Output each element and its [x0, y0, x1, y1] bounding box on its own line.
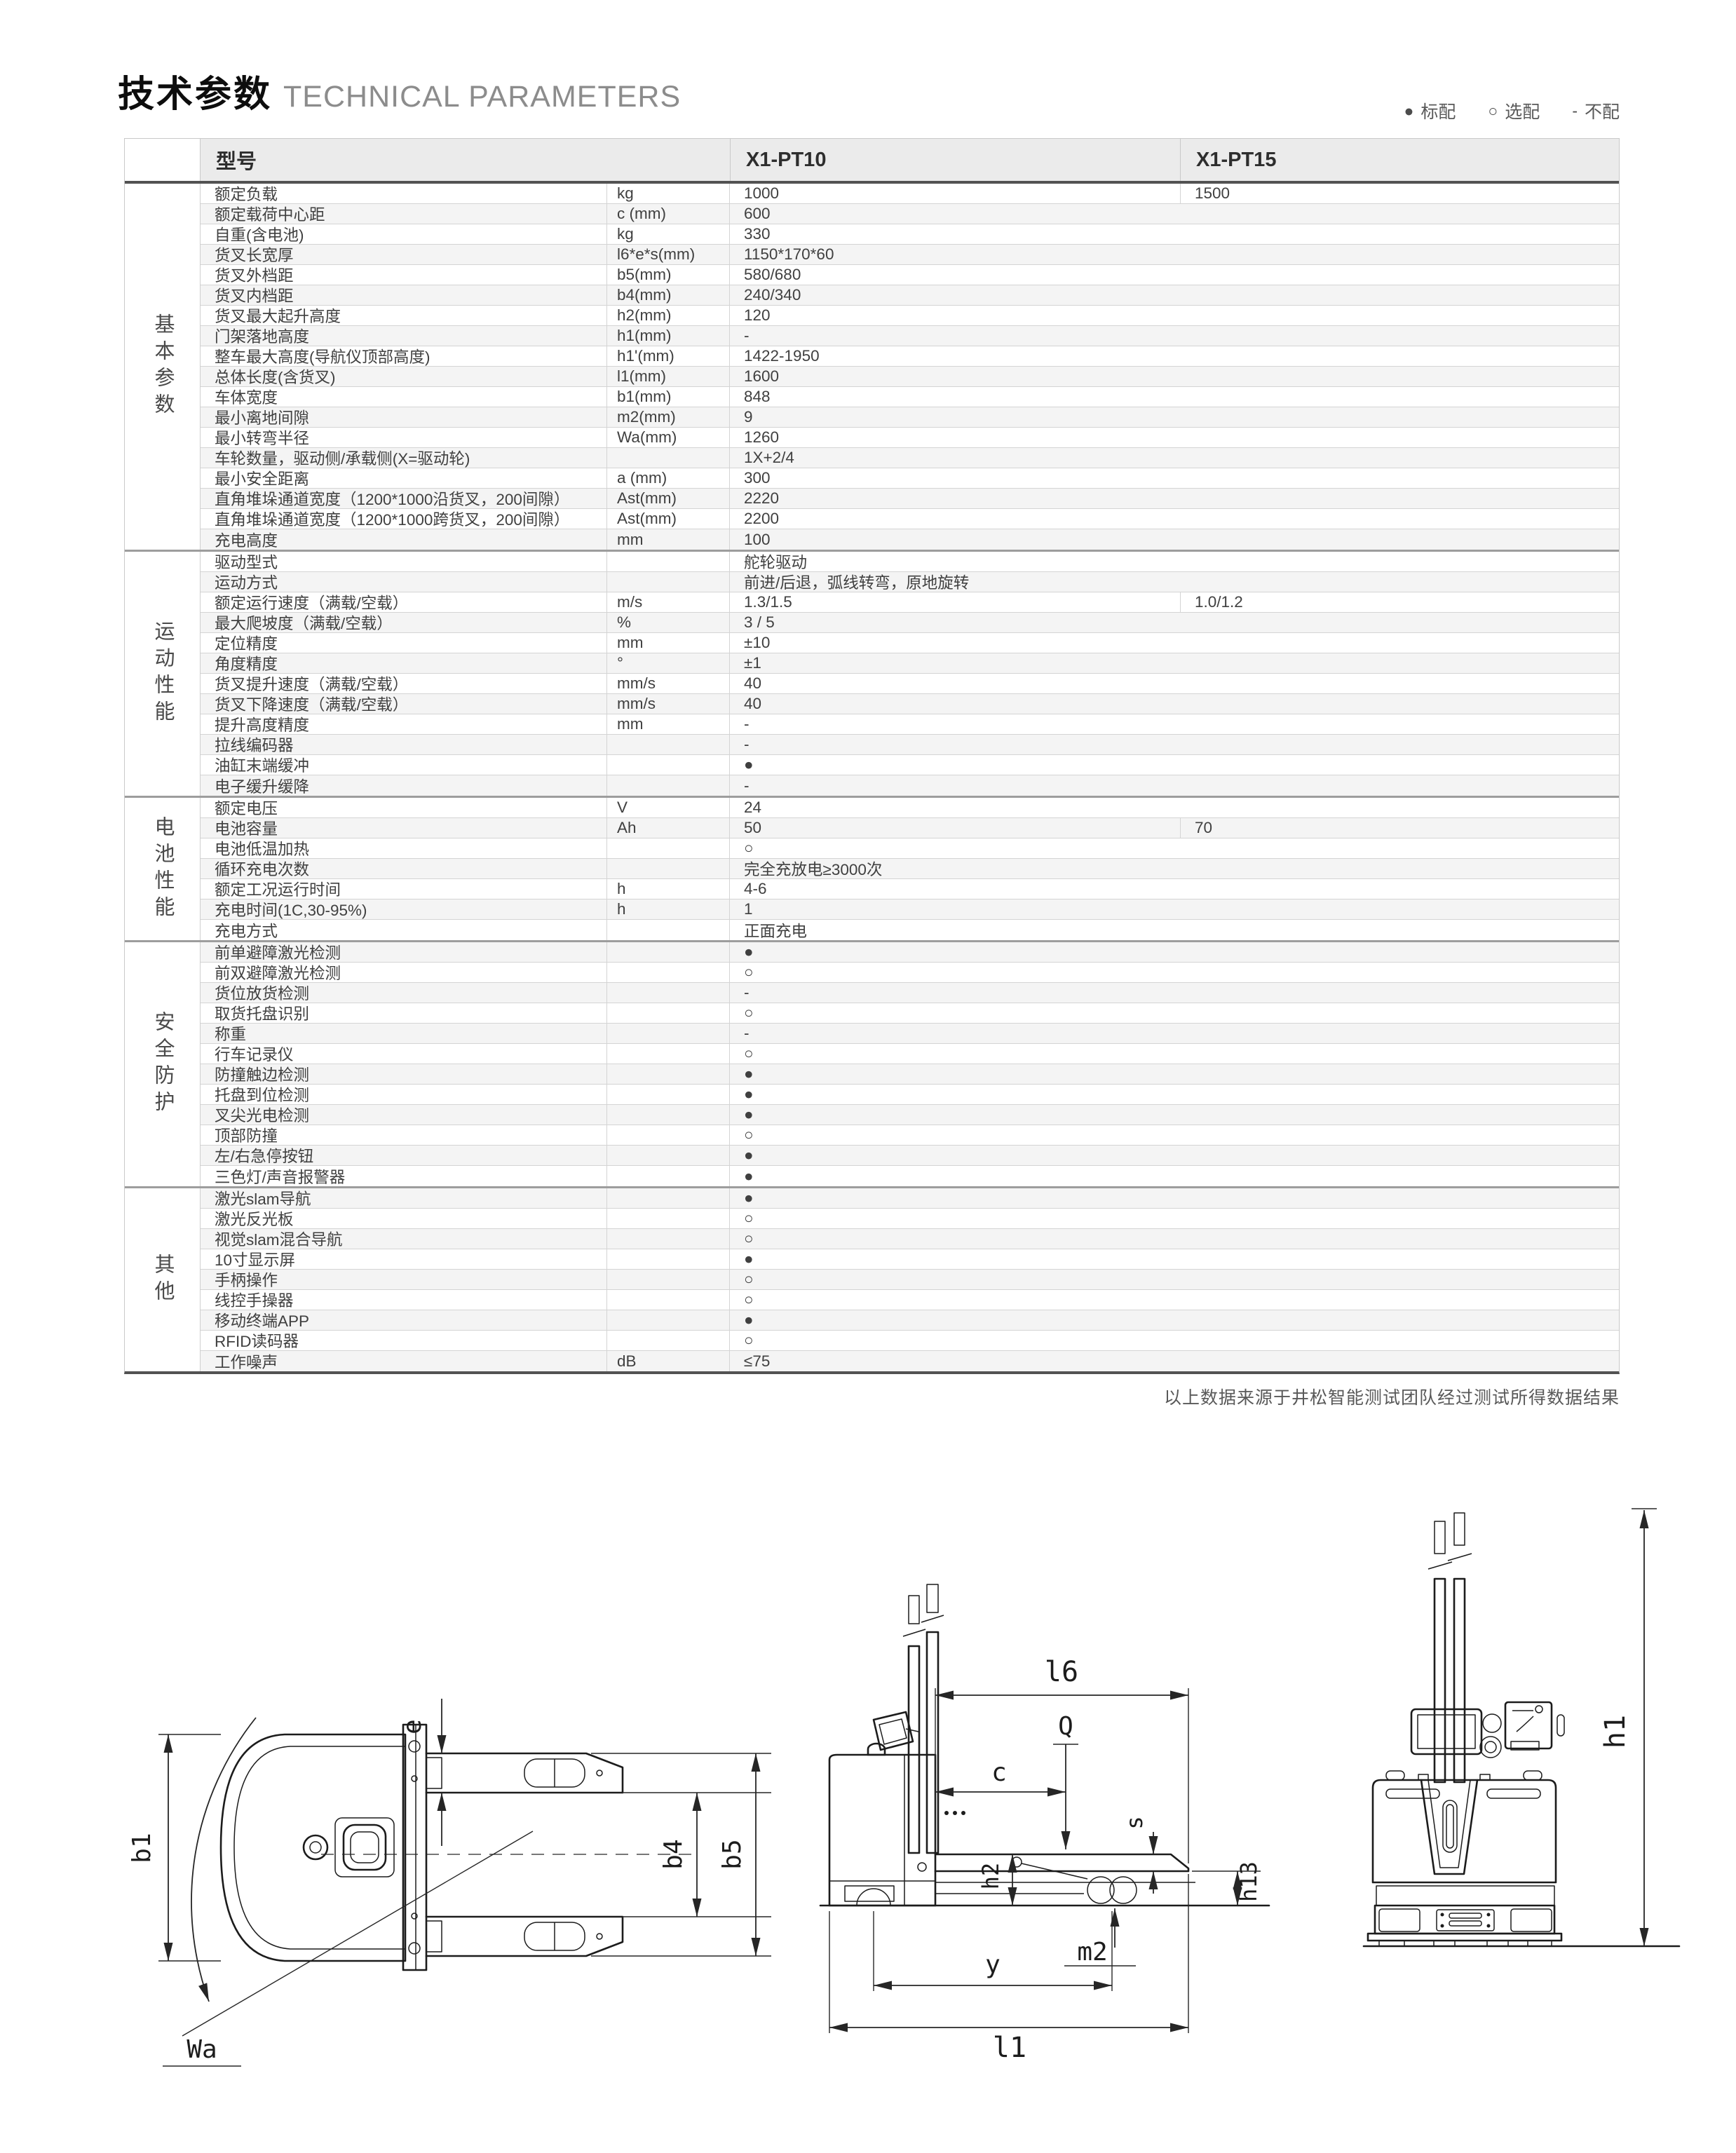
param-label: 额定载荷中心距: [201, 204, 607, 224]
param-label: 电池低温加热: [201, 838, 607, 858]
model-x1-pt15-cell: X1-PT15: [1180, 139, 1619, 181]
table-section: 运动性能驱动型式舵轮驱动运动方式前进/后退，弧线转弯，原地旋转额定运行速度（满载…: [125, 550, 1619, 796]
param-value: ○: [730, 1044, 1619, 1064]
param-value: ±1: [730, 653, 1619, 673]
top-view-drawing: b1 e b4 b5 Wa: [104, 1609, 798, 2100]
table-row: 线控手操器○: [201, 1290, 1619, 1310]
param-unit: mm/s: [607, 674, 730, 693]
param-value: 前进/后退，弧线转弯，原地旋转: [730, 572, 1619, 592]
param-unit: [607, 1146, 730, 1165]
param-label: 最大爬坡度（满载/空载）: [201, 613, 607, 632]
legend-item-standard: ● 标配: [1404, 98, 1456, 123]
param-label: 前双避障激光检测: [201, 963, 607, 982]
section-label-text: 安全防护: [152, 1011, 172, 1118]
table-row: 油缸末端缓冲●: [201, 755, 1619, 775]
footnote: 以上数据来源于井松智能测试团队经过测试所得数据结果: [1164, 1384, 1620, 1409]
table-section: 安全防护前单避障激光检测●前双避障激光检测○货位放货检测-取货托盘识别○称重-行…: [125, 940, 1619, 1186]
param-unit: h: [607, 899, 730, 919]
table-row: 门架落地高度h1(mm)-: [201, 326, 1619, 346]
param-unit: mm/s: [607, 694, 730, 714]
param-label: 称重: [201, 1024, 607, 1043]
spec-table: 型号 X1-PT10 X1-PT15 基本参数额定负载kg10001500额定载…: [124, 138, 1620, 1374]
param-label: 直角堆垛通道宽度（1200*1000沿货叉，200间隙）: [201, 489, 607, 508]
param-label: 门架落地高度: [201, 326, 607, 346]
section-label: 电池性能: [125, 798, 201, 940]
param-unit: [607, 572, 730, 592]
dim-label-s: s: [1121, 1816, 1148, 1829]
param-unit: [607, 1209, 730, 1228]
param-label: 额定运行速度（满载/空载）: [201, 592, 607, 612]
param-value: ≤75: [730, 1351, 1619, 1371]
param-value: 300: [730, 468, 1619, 488]
param-value-pt10: 1.3/1.5: [730, 592, 1180, 612]
param-unit: [607, 1290, 730, 1310]
table-row: 最小离地间隙m2(mm)9: [201, 407, 1619, 428]
table-section: 其他激光slam导航●激光反光板○视觉slam混合导航○10寸显示屏●手柄操作○…: [125, 1186, 1619, 1371]
param-unit: [607, 552, 730, 571]
param-unit: Ast(mm): [607, 489, 730, 508]
param-value: 330: [730, 224, 1619, 244]
param-unit: h2(mm): [607, 306, 730, 325]
param-value-pt10: 1000: [730, 184, 1180, 203]
table-row: 叉尖光电检测●: [201, 1105, 1619, 1125]
param-value: 1260: [730, 428, 1619, 447]
table-row: 额定载荷中心距c (mm)600: [201, 204, 1619, 224]
param-unit: [607, 448, 730, 468]
param-unit: [607, 755, 730, 775]
param-label: 行车记录仪: [201, 1044, 607, 1064]
table-row: 整车最大高度(导航仪顶部高度)h1'(mm)1422-1950: [201, 346, 1619, 367]
dim-label-q: Q: [1058, 1712, 1073, 1741]
param-label: 顶部防撞: [201, 1125, 607, 1145]
param-label: 10寸显示屏: [201, 1249, 607, 1269]
param-label: 角度精度: [201, 653, 607, 673]
param-value: ○: [730, 838, 1619, 858]
param-value: 40: [730, 674, 1619, 693]
dim-label-wa: Wa: [187, 2035, 217, 2064]
param-label: 额定电压: [201, 798, 607, 817]
param-unit: kg: [607, 224, 730, 244]
param-value: ●: [730, 1064, 1619, 1084]
param-value-pt10: 50: [730, 818, 1180, 838]
table-row: 货叉外档距b5(mm)580/680: [201, 265, 1619, 285]
param-label: 激光反光板: [201, 1209, 607, 1228]
dim-label-y: y: [985, 1950, 1001, 1979]
param-unit: [607, 1024, 730, 1043]
param-label: 最小离地间隙: [201, 407, 607, 427]
param-unit: mm: [607, 633, 730, 653]
param-unit: a (mm): [607, 468, 730, 488]
dim-label-h2: h2: [977, 1863, 1004, 1890]
page-title: 技术参数TECHNICAL PARAMETERS: [118, 64, 681, 117]
table-row: 货叉最大起升高度h2(mm)120: [201, 306, 1619, 326]
table-row: 额定运行速度（满载/空载）m/s1.3/1.51.0/1.2: [201, 592, 1619, 613]
param-value: ○: [730, 1331, 1619, 1350]
param-label: 电子缓升缓降: [201, 775, 607, 796]
table-row: 额定电压V24: [201, 798, 1619, 818]
param-unit: l1(mm): [607, 367, 730, 386]
param-value: -: [730, 983, 1619, 1003]
table-row: 拉线编码器-: [201, 735, 1619, 755]
param-label: 左/右急停按钮: [201, 1146, 607, 1165]
table-row: 防撞触边检测●: [201, 1064, 1619, 1085]
param-unit: dB: [607, 1351, 730, 1371]
param-value: ●: [730, 942, 1619, 962]
model-header-cell: 型号: [201, 139, 730, 181]
section-rows: 额定负载kg10001500额定载荷中心距c (mm)600自重(含电池)kg3…: [201, 184, 1619, 550]
dim-label-m2: m2: [1077, 1938, 1107, 1967]
section-rows: 激光slam导航●激光反光板○视觉slam混合导航○10寸显示屏●手柄操作○线控…: [201, 1188, 1619, 1371]
param-label: 货叉内档距: [201, 285, 607, 305]
hollow-dot-icon: ○: [1488, 102, 1498, 121]
param-value: 600: [730, 204, 1619, 224]
param-label: 额定负载: [201, 184, 607, 203]
param-unit: Ah: [607, 818, 730, 838]
table-row: 总体长度(含货叉)l1(mm)1600: [201, 367, 1619, 387]
param-unit: [607, 1166, 730, 1186]
table-row: 激光反光板○: [201, 1209, 1619, 1229]
param-label: 自重(含电池): [201, 224, 607, 244]
param-label: 直角堆垛通道宽度（1200*1000跨货叉，200间隙）: [201, 509, 607, 529]
param-value: -: [730, 326, 1619, 346]
table-row: 车轮数量，驱动侧/承载侧(X=驱动轮)1X+2/4: [201, 448, 1619, 468]
table-row: 称重-: [201, 1024, 1619, 1044]
param-value: 1422-1950: [730, 346, 1619, 366]
param-value: 120: [730, 306, 1619, 325]
table-row: 驱动型式舵轮驱动: [201, 552, 1619, 572]
param-value: 9: [730, 407, 1619, 427]
table-section: 电池性能额定电压V24电池容量Ah5070电池低温加热○循环充电次数完全充放电≥…: [125, 796, 1619, 940]
param-label: 手柄操作: [201, 1270, 607, 1289]
section-rows: 前单避障激光检测●前双避障激光检测○货位放货检测-取货托盘识别○称重-行车记录仪…: [201, 942, 1619, 1186]
table-row: 循环充电次数完全充放电≥3000次: [201, 859, 1619, 879]
param-unit: [607, 775, 730, 796]
vehicle-front-outline: [1364, 1513, 1679, 1946]
param-unit: [607, 1125, 730, 1145]
param-unit: b1(mm): [607, 387, 730, 407]
param-label: RFID读码器: [201, 1331, 607, 1350]
param-value: ●: [730, 1105, 1619, 1125]
param-value: 40: [730, 694, 1619, 714]
param-label: 电池容量: [201, 818, 607, 838]
param-unit: b5(mm): [607, 265, 730, 285]
param-label: 定位精度: [201, 633, 607, 653]
section-label-text: 运动性能: [152, 620, 172, 727]
table-row: 最小安全距离a (mm)300: [201, 468, 1619, 489]
param-unit: mm: [607, 714, 730, 734]
param-unit: [607, 838, 730, 858]
param-unit: Wa(mm): [607, 428, 730, 447]
param-unit: [607, 963, 730, 982]
table-row: 角度精度°±1: [201, 653, 1619, 674]
table-row: RFID读码器○: [201, 1331, 1619, 1351]
table-row: 充电时间(1C,30-95%)h1: [201, 899, 1619, 920]
param-label: 循环充电次数: [201, 859, 607, 878]
param-unit: l6*e*s(mm): [607, 245, 730, 264]
param-value: -: [730, 1024, 1619, 1043]
param-label: 整车最大高度(导航仪顶部高度): [201, 346, 607, 366]
table-row: 手柄操作○: [201, 1270, 1619, 1290]
table-row: 最小转弯半径Wa(mm)1260: [201, 428, 1619, 448]
param-value: ●: [730, 1249, 1619, 1269]
table-row: 车体宽度b1(mm)848: [201, 387, 1619, 407]
param-value: 2200: [730, 509, 1619, 529]
param-value: ○: [730, 1003, 1619, 1023]
section-rows: 驱动型式舵轮驱动运动方式前进/后退，弧线转弯，原地旋转额定运行速度（满载/空载）…: [201, 552, 1619, 796]
param-unit: [607, 735, 730, 754]
model-x1-pt10-cell: X1-PT10: [730, 139, 1180, 181]
dim-label-l6: l6: [1045, 1656, 1078, 1688]
param-value: ±10: [730, 633, 1619, 653]
param-unit: [607, 1249, 730, 1269]
filled-dot-icon: ●: [1404, 102, 1413, 121]
dim-label-b5: b5: [718, 1839, 747, 1869]
param-value: 4-6: [730, 879, 1619, 899]
legend: ● 标配 ○ 选配 - 不配: [1404, 98, 1620, 123]
param-value: 1600: [730, 367, 1619, 386]
front-view-dimensions: h1: [1599, 1509, 1657, 1946]
table-row: 顶部防撞○: [201, 1125, 1619, 1146]
param-unit: %: [607, 613, 730, 632]
param-value: ●: [730, 1146, 1619, 1165]
dim-label-b1: b1: [128, 1833, 156, 1863]
table-row: 充电高度mm100: [201, 529, 1619, 550]
table-row: 额定工况运行时间h4-6: [201, 879, 1619, 899]
param-label: 车体宽度: [201, 387, 607, 407]
param-label: 充电高度: [201, 529, 607, 550]
param-unit: [607, 1105, 730, 1125]
table-row: 电池容量Ah5070: [201, 818, 1619, 838]
table-row: 10寸显示屏●: [201, 1249, 1619, 1270]
table-row: 货叉提升速度（满载/空载）mm/s40: [201, 674, 1619, 694]
section-label: 运动性能: [125, 552, 201, 796]
param-label: 移动终端APP: [201, 1310, 607, 1330]
param-label: 货叉长宽厚: [201, 245, 607, 264]
param-unit: Ast(mm): [607, 509, 730, 529]
param-unit: °: [607, 653, 730, 673]
param-value: 2220: [730, 489, 1619, 508]
param-unit: mm: [607, 529, 730, 550]
param-label: 激光slam导航: [201, 1188, 607, 1208]
param-unit: h1(mm): [607, 326, 730, 346]
table-row: 三色灯/声音报警器●: [201, 1166, 1619, 1186]
vehicle-top-outline: [221, 1725, 700, 1970]
table-row: 货叉长宽厚l6*e*s(mm)1150*170*60: [201, 245, 1619, 265]
param-label: 最小转弯半径: [201, 428, 607, 447]
param-value-pt15: 1500: [1180, 184, 1619, 203]
table-row: 行车记录仪○: [201, 1044, 1619, 1064]
param-label: 叉尖光电检测: [201, 1105, 607, 1125]
side-view-dimensions: l6 Q c h2 s h13 m2 y l1: [829, 1656, 1262, 2064]
param-label: 充电方式: [201, 920, 607, 940]
legend-label: 选配: [1505, 98, 1540, 123]
table-row: 取货托盘识别○: [201, 1003, 1619, 1024]
param-value: ●: [730, 1085, 1619, 1104]
table-row: 托盘到位检测●: [201, 1085, 1619, 1105]
param-value: ●: [730, 1166, 1619, 1186]
side-view-drawing: l6 Q c h2 s h13 m2 y l1: [806, 1576, 1297, 2067]
param-unit: [607, 1003, 730, 1023]
legend-item-none: - 不配: [1572, 98, 1620, 123]
param-unit: [607, 983, 730, 1003]
section-label: 安全防护: [125, 942, 201, 1186]
param-value: ○: [730, 963, 1619, 982]
param-value: -: [730, 735, 1619, 754]
param-value-pt15: 1.0/1.2: [1180, 592, 1619, 612]
param-label: 驱动型式: [201, 552, 607, 571]
param-label: 防撞触边检测: [201, 1064, 607, 1084]
table-row: 直角堆垛通道宽度（1200*1000沿货叉，200间隙）Ast(mm)2220: [201, 489, 1619, 509]
param-label: 运动方式: [201, 572, 607, 592]
dim-label-e: e: [398, 1719, 427, 1734]
legend-item-optional: ○ 选配: [1488, 98, 1540, 123]
param-label: 货叉外档距: [201, 265, 607, 285]
param-value: ●: [730, 1188, 1619, 1208]
param-unit: [607, 1270, 730, 1289]
dim-label-c: c: [991, 1758, 1007, 1787]
param-value: 1: [730, 899, 1619, 919]
param-value: 舵轮驱动: [730, 552, 1619, 571]
param-unit: [607, 920, 730, 940]
param-label: 额定工况运行时间: [201, 879, 607, 899]
param-value: 3 / 5: [730, 613, 1619, 632]
section-label: 基本参数: [125, 184, 201, 550]
param-value-pt15: 70: [1180, 818, 1619, 838]
table-body: 基本参数额定负载kg10001500额定载荷中心距c (mm)600自重(含电池…: [125, 184, 1619, 1371]
table-row: 工作噪声dB≤75: [201, 1351, 1619, 1371]
param-value: 完全充放电≥3000次: [730, 859, 1619, 878]
param-label: 充电时间(1C,30-95%): [201, 899, 607, 919]
section-label-text: 其他: [152, 1254, 172, 1307]
param-unit: h: [607, 879, 730, 899]
table-row: 前单避障激光检测●: [201, 942, 1619, 963]
param-label: 拉线编码器: [201, 735, 607, 754]
section-label-text: 电池性能: [152, 816, 172, 923]
param-value: -: [730, 775, 1619, 796]
front-view-drawing: h1: [1350, 1500, 1700, 2145]
table-row: 货叉下降速度（满载/空载）mm/s40: [201, 694, 1619, 714]
param-label: 车轮数量，驱动侧/承载侧(X=驱动轮): [201, 448, 607, 468]
table-row: 左/右急停按钮●: [201, 1146, 1619, 1166]
table-corner-cell: [125, 139, 201, 181]
param-value: ○: [730, 1229, 1619, 1249]
param-value: 正面充电: [730, 920, 1619, 940]
param-label: 最小安全距离: [201, 468, 607, 488]
param-unit: V: [607, 798, 730, 817]
param-label: 前单避障激光检测: [201, 942, 607, 962]
param-value: ○: [730, 1270, 1619, 1289]
table-row: 货位放货检测-: [201, 983, 1619, 1003]
table-row: 定位精度mm±10: [201, 633, 1619, 653]
param-label: 三色灯/声音报警器: [201, 1166, 607, 1186]
param-unit: b4(mm): [607, 285, 730, 305]
param-unit: [607, 1229, 730, 1249]
dim-label-h13: h13: [1235, 1861, 1262, 1902]
section-rows: 额定电压V24电池容量Ah5070电池低温加热○循环充电次数完全充放电≥3000…: [201, 798, 1619, 940]
table-row: 电子缓升缓降-: [201, 775, 1619, 796]
param-label: 取货托盘识别: [201, 1003, 607, 1023]
dash-icon: -: [1572, 102, 1578, 121]
param-unit: [607, 1331, 730, 1350]
param-label: 货叉下降速度（满载/空载）: [201, 694, 607, 714]
table-row: 激光slam导航●: [201, 1188, 1619, 1209]
dim-label-b4: b4: [659, 1839, 688, 1869]
param-value: ●: [730, 755, 1619, 775]
legend-label: 标配: [1420, 98, 1456, 123]
param-label: 提升高度精度: [201, 714, 607, 734]
param-unit: [607, 1188, 730, 1208]
table-header-row: 型号 X1-PT10 X1-PT15: [125, 139, 1619, 184]
param-label: 视觉slam混合导航: [201, 1229, 607, 1249]
param-label: 货位放货检测: [201, 983, 607, 1003]
legend-label: 不配: [1585, 98, 1620, 123]
param-value: 1X+2/4: [730, 448, 1619, 468]
table-row: 额定负载kg10001500: [201, 184, 1619, 204]
section-label: 其他: [125, 1188, 201, 1371]
param-value: -: [730, 714, 1619, 734]
param-unit: h1'(mm): [607, 346, 730, 366]
param-unit: m/s: [607, 592, 730, 612]
param-unit: [607, 942, 730, 962]
dim-label-l1: l1: [993, 2032, 1026, 2064]
table-row: 充电方式正面充电: [201, 920, 1619, 940]
param-label: 货叉最大起升高度: [201, 306, 607, 325]
table-row: 自重(含电池)kg330: [201, 224, 1619, 245]
param-unit: [607, 1310, 730, 1330]
table-row: 电池低温加热○: [201, 838, 1619, 859]
table-row: 前双避障激光检测○: [201, 963, 1619, 983]
section-label-text: 基本参数: [152, 313, 172, 420]
param-unit: kg: [607, 184, 730, 203]
vehicle-side-outline: [820, 1584, 1269, 1906]
param-value: 848: [730, 387, 1619, 407]
param-label: 总体长度(含货叉): [201, 367, 607, 386]
param-unit: [607, 859, 730, 878]
param-label: 工作噪声: [201, 1351, 607, 1371]
param-value: ○: [730, 1209, 1619, 1228]
param-label: 托盘到位检测: [201, 1085, 607, 1104]
table-row: 最大爬坡度（满载/空载）%3 / 5: [201, 613, 1619, 633]
param-unit: c (mm): [607, 204, 730, 224]
table-row: 提升高度精度mm-: [201, 714, 1619, 735]
table-row: 货叉内档距b4(mm)240/340: [201, 285, 1619, 306]
param-label: 货叉提升速度（满载/空载）: [201, 674, 607, 693]
param-value: 240/340: [730, 285, 1619, 305]
param-value: 24: [730, 798, 1619, 817]
table-row: 视觉slam混合导航○: [201, 1229, 1619, 1249]
param-unit: m2(mm): [607, 407, 730, 427]
param-value: ●: [730, 1310, 1619, 1330]
dim-label-h1: h1: [1599, 1715, 1632, 1748]
param-unit: [607, 1044, 730, 1064]
table-row: 直角堆垛通道宽度（1200*1000跨货叉，200间隙）Ast(mm)2200: [201, 509, 1619, 529]
param-label: 油缸末端缓冲: [201, 755, 607, 775]
page-title-en: TECHNICAL PARAMETERS: [283, 80, 681, 114]
param-value: 100: [730, 529, 1619, 550]
param-label: 线控手操器: [201, 1290, 607, 1310]
table-section: 基本参数额定负载kg10001500额定载荷中心距c (mm)600自重(含电池…: [125, 184, 1619, 550]
table-row: 运动方式前进/后退，弧线转弯，原地旋转: [201, 572, 1619, 592]
param-value: ○: [730, 1125, 1619, 1145]
param-unit: [607, 1085, 730, 1104]
page-title-zh: 技术参数: [118, 74, 272, 115]
table-row: 移动终端APP●: [201, 1310, 1619, 1331]
param-unit: [607, 1064, 730, 1084]
param-value: 580/680: [730, 265, 1619, 285]
param-value: 1150*170*60: [730, 245, 1619, 264]
param-value: ○: [730, 1290, 1619, 1310]
